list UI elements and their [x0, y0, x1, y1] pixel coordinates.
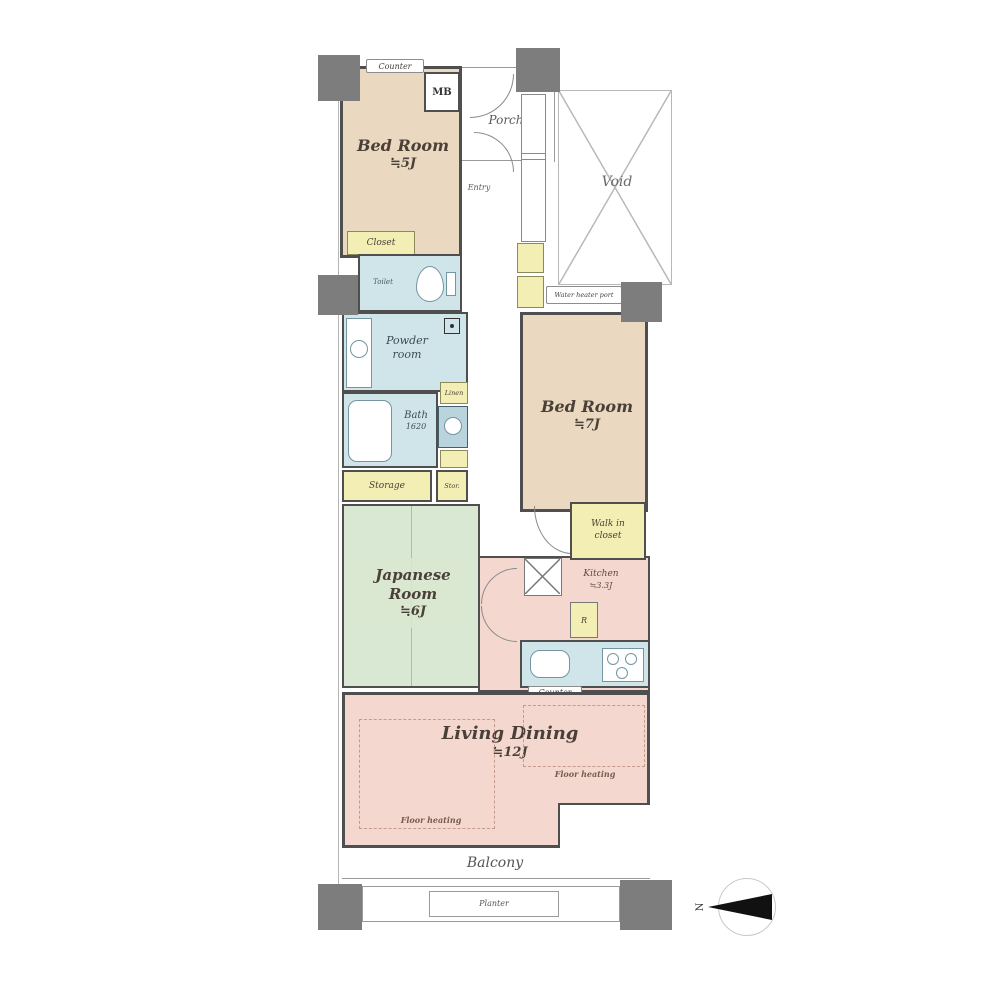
stove — [602, 648, 644, 682]
storage-main: Storage — [342, 470, 432, 502]
wic-door-arc — [534, 506, 572, 554]
vanity-basin — [350, 340, 368, 358]
floor-heating-left — [359, 719, 495, 829]
washing-machine-icon — [444, 417, 462, 435]
floor-heating-right-label: Floor heating — [549, 769, 621, 781]
storage-small: Stor. — [436, 470, 468, 502]
balcony-edge-line — [342, 878, 650, 879]
bath-label: Bath 1620 — [394, 404, 438, 438]
ld-corner-cutout — [558, 803, 650, 848]
closet: Closet — [347, 231, 415, 255]
powder-room-label: Powder room — [374, 332, 440, 364]
bedroom-7j: Bed Room ≒7J — [520, 312, 648, 512]
pillar-mid-left — [318, 275, 358, 315]
toilet-room: Toilet — [358, 254, 462, 312]
pillar-bottom-left — [318, 884, 362, 930]
burner-icon — [625, 653, 637, 665]
washer-tap-box — [444, 318, 460, 334]
small-yellow-box — [440, 450, 468, 468]
burner-icon — [616, 667, 628, 679]
burner-icon — [607, 653, 619, 665]
shoe-box-lower — [517, 276, 544, 308]
washing-machine-space — [438, 406, 468, 448]
planter-box: Planter — [429, 891, 559, 917]
kitchen-label: Kitchen ≒3.3J — [568, 566, 634, 594]
water-heater-label: Water heater port — [546, 286, 622, 304]
hatch-cross-icon — [525, 559, 560, 594]
bathtub — [348, 400, 392, 462]
shaft-divider2 — [522, 159, 545, 160]
pillar-bottom-right — [620, 880, 672, 930]
washer-tap-dot — [450, 324, 454, 328]
floor-heating-right — [523, 705, 645, 767]
toilet-fixture — [416, 266, 444, 302]
balcony-parapet: Planter — [362, 886, 620, 922]
refrigerator-space: R — [570, 602, 598, 638]
floor-plan: Void Bed Room ≒5J Closet Counter MB Porc… — [0, 0, 1000, 1000]
kitchen-sink — [530, 650, 570, 678]
bath-room: Bath 1620 — [342, 392, 438, 468]
kitchen-counter — [520, 640, 650, 688]
japanese-room-label: Japanese Room ≒6J — [358, 558, 468, 628]
entry-door-arc — [474, 132, 514, 172]
toilet-label: Toilet — [364, 276, 402, 288]
pillar-top-left — [318, 55, 360, 101]
walk-in-closet: Walk in closet — [570, 502, 646, 560]
hatch-box — [524, 558, 562, 596]
entry-label: Entry — [462, 182, 496, 194]
floor-heating-left-label: Floor heating — [395, 815, 467, 827]
pipe-shaft — [521, 94, 546, 242]
north-label: N — [694, 900, 708, 914]
counter-top-label: Counter — [366, 59, 424, 73]
japanese-room: Japanese Room ≒6J — [342, 504, 480, 688]
living-dining: Living Dining ≒12J Floor heating Floor h… — [342, 692, 650, 848]
bedroom-7j-label: Bed Room ≒7J — [533, 391, 641, 439]
bedroom-5j-label: Bed Room ≒5J — [349, 129, 457, 179]
pillar-mid-right — [621, 282, 662, 322]
meter-box: MB — [424, 72, 460, 112]
toilet-tank — [446, 272, 456, 296]
left-edge-line — [338, 96, 339, 886]
linen-box: Linen — [440, 382, 468, 404]
shaft-divider — [522, 153, 545, 154]
powder-room: Powder room — [342, 312, 468, 392]
shoe-box-upper — [517, 243, 544, 273]
balcony-label: Balcony — [440, 854, 550, 874]
void-area: Void — [558, 90, 672, 285]
void-label: Void — [587, 173, 647, 193]
compass: N — [694, 872, 780, 942]
pillar-top-middle — [516, 48, 560, 92]
planter-label: Planter — [479, 899, 509, 909]
